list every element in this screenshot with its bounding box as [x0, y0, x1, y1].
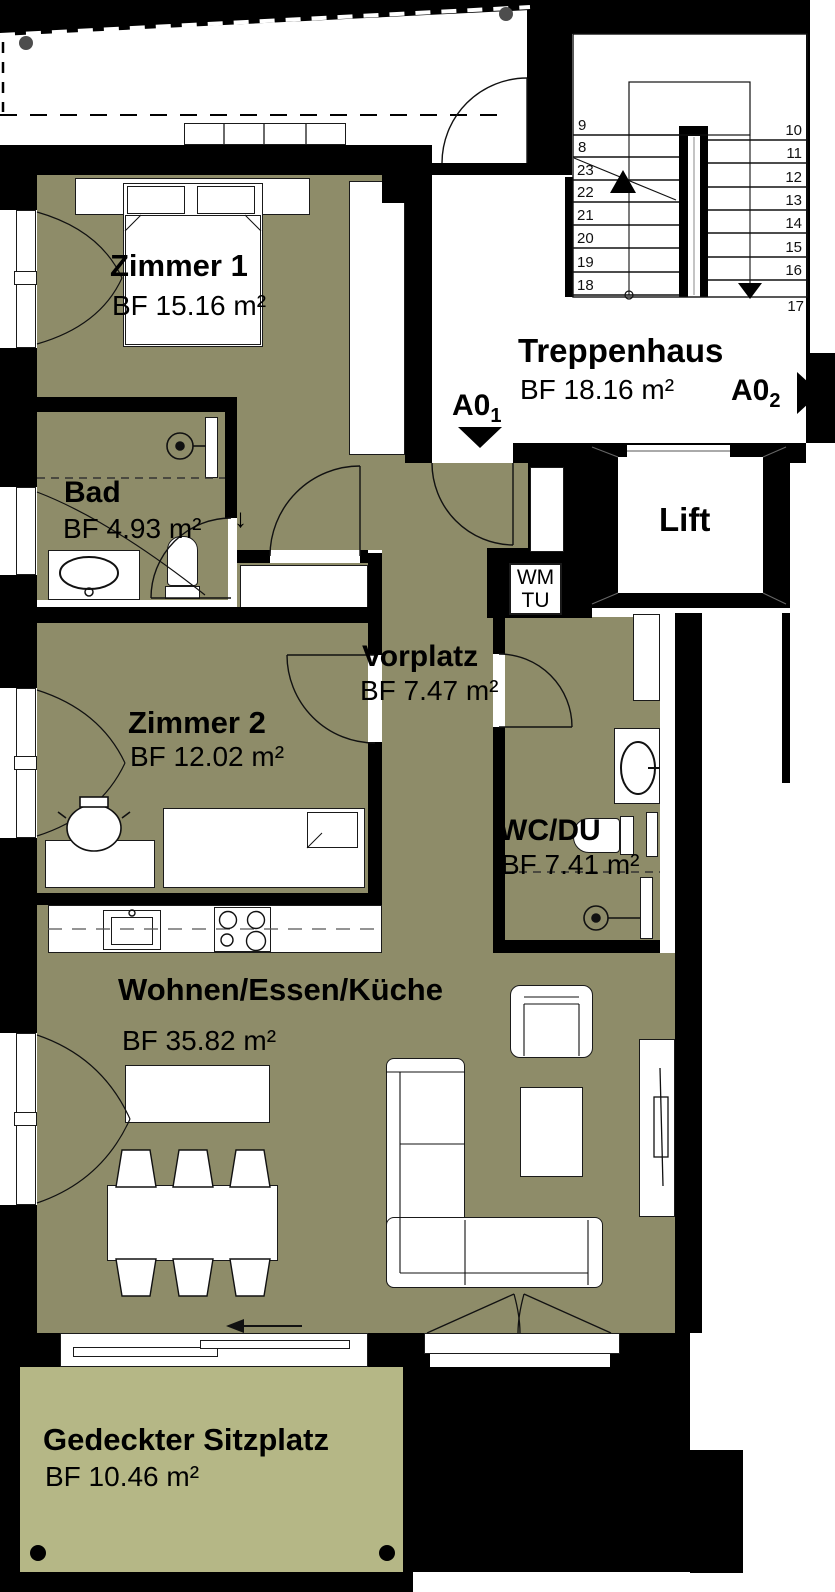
- room-area-vorplatz: BF 7.47 m²: [360, 676, 498, 705]
- duct-shaft: [530, 467, 564, 552]
- a01-sub: 1: [490, 405, 501, 427]
- tu-text: TU: [509, 589, 562, 612]
- stair-number: 15: [770, 240, 802, 256]
- room-label-sitzplatz: Gedeckter Sitzplatz: [43, 1424, 329, 1457]
- wall: [0, 348, 37, 487]
- wall: [806, 353, 835, 443]
- wc-cabinet: [633, 614, 660, 701]
- stair-number: 17: [772, 299, 804, 315]
- window-bad: [16, 487, 36, 575]
- wall: [0, 575, 37, 688]
- room-area-zimmer2: BF 12.02 m²: [130, 742, 284, 771]
- wall: [405, 175, 432, 463]
- wall: [0, 607, 377, 623]
- room-area-zimmer1: BF 15.16 m²: [112, 291, 266, 320]
- sliding-door-panel: [73, 1347, 218, 1357]
- wall: [0, 145, 37, 210]
- room-area-wcdu: BF 7.41 m²: [501, 850, 639, 879]
- bathroom-sink-counter: [48, 550, 140, 600]
- stair-number: 20: [577, 231, 594, 247]
- french-door: [424, 1333, 620, 1354]
- wall: [513, 443, 528, 463]
- stair-core-gap: [688, 136, 700, 297]
- kitchen-stove: [214, 907, 271, 952]
- stair-number: 16: [770, 263, 802, 279]
- wall: [675, 613, 702, 1333]
- stair-number: 9: [578, 118, 586, 134]
- room-area-treppenhaus: BF 18.16 m²: [520, 375, 674, 404]
- stair-number: 14: [770, 216, 802, 232]
- column: [690, 1450, 743, 1573]
- window-transom: [14, 756, 37, 770]
- stair-number: 11: [770, 146, 802, 162]
- stair-number: 10: [770, 123, 802, 139]
- wall: [37, 397, 237, 412]
- floor-plan: Zimmer 1 BF 15.16 m² Treppenhaus BF 18.1…: [0, 0, 835, 1592]
- stair-number: 19: [577, 255, 594, 271]
- pillow: [127, 186, 185, 214]
- wall: [0, 838, 37, 1033]
- wall: [382, 175, 405, 203]
- facade-window-strip: [184, 123, 346, 145]
- a02-sub: 2: [769, 390, 780, 412]
- kitchen-island: [125, 1065, 270, 1123]
- door-sill: [430, 1354, 610, 1367]
- wall: [368, 1333, 403, 1367]
- room-label-vorplatz: Vorplatz: [362, 641, 478, 673]
- room-vorplatz-floor: [382, 550, 493, 905]
- side-table: [45, 840, 155, 888]
- pillow: [197, 186, 255, 214]
- wall: [432, 163, 527, 175]
- stair-number: 8: [578, 140, 586, 156]
- wall: [0, 145, 432, 175]
- wall: [527, 0, 572, 175]
- wall: [403, 1333, 690, 1572]
- wc-sink-counter: [614, 728, 660, 804]
- room-area-bad: BF 4.93 m²: [63, 514, 201, 543]
- wall: [368, 742, 382, 893]
- wall: [20, 1333, 60, 1367]
- room-area-sitzplatz: BF 10.46 m²: [45, 1462, 199, 1491]
- wall: [0, 1572, 413, 1592]
- hall-wardrobe: [240, 565, 368, 613]
- room-label-lift: Lift: [659, 503, 710, 538]
- dining-table: [107, 1185, 278, 1261]
- stair-number: 18: [577, 278, 594, 294]
- stair-number: 12: [770, 170, 802, 186]
- room-label-wcdu: WC/DU: [499, 815, 601, 847]
- coffee-table: [520, 1087, 583, 1177]
- stair-number: 21: [577, 208, 594, 224]
- apartment-marker-a02: A02: [731, 375, 780, 412]
- room-label-wohnen: Wohnen/Essen/Küche: [118, 974, 443, 1007]
- tall-wardrobe: [349, 181, 405, 455]
- a02-text: A0: [731, 374, 769, 407]
- sliding-door-panel: [200, 1340, 350, 1349]
- stair-number: 22: [577, 185, 594, 201]
- wall: [493, 617, 505, 654]
- window-transom: [14, 271, 37, 285]
- entry-floor: [432, 463, 528, 550]
- pillow: [307, 812, 358, 848]
- wall: [806, 0, 810, 353]
- wc-service-strip: [660, 613, 675, 953]
- wall: [360, 550, 368, 563]
- wall: [0, 1333, 20, 1572]
- window-transom: [14, 1112, 37, 1126]
- room-label-bad: Bad: [64, 477, 121, 509]
- wall: [572, 0, 807, 34]
- wm-text: WM: [509, 566, 562, 589]
- kitchen-sink-basin: [111, 917, 153, 945]
- wall: [493, 940, 677, 953]
- column-dot: [19, 36, 33, 50]
- wall: [0, 1205, 37, 1333]
- wm-tu-label: WM TU: [509, 566, 562, 612]
- wall: [782, 613, 790, 783]
- stair-number: 13: [770, 193, 802, 209]
- wc-shower-glass: [640, 877, 653, 939]
- room-area-wohnen: BF 35.82 m²: [122, 1026, 276, 1055]
- corridor-floor-2: [405, 463, 432, 550]
- room-label-zimmer1: Zimmer 1: [110, 250, 248, 283]
- wall: [0, 893, 382, 905]
- apartment-marker-a01: A01: [452, 390, 501, 427]
- sideboard: [639, 1039, 675, 1217]
- armchair: [510, 985, 593, 1058]
- toilet-cistern: [165, 586, 200, 599]
- stair-number: 23: [577, 163, 594, 179]
- wall: [565, 177, 573, 297]
- sofa-section-horizontal: [386, 1217, 603, 1288]
- wc-shelf: [646, 812, 658, 857]
- wall: [237, 550, 270, 563]
- drain-arrow-icon: ↓: [234, 505, 247, 532]
- a01-text: A0: [452, 389, 490, 422]
- room-label-treppenhaus: Treppenhaus: [518, 334, 723, 369]
- shower-glass: [205, 417, 218, 478]
- lift-door-gap: [627, 445, 730, 457]
- room-label-zimmer2: Zimmer 2: [128, 707, 266, 740]
